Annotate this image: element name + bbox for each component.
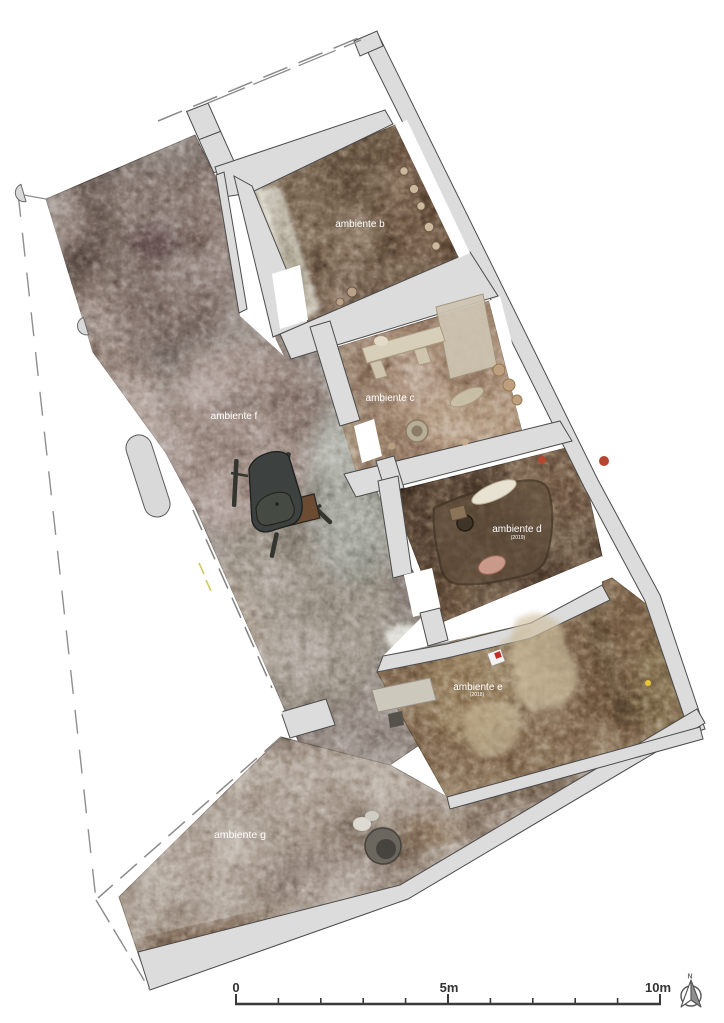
svg-text:0: 0 bbox=[232, 980, 239, 995]
svg-text:ambiente g: ambiente g bbox=[214, 829, 266, 841]
svg-text:ambiente c: ambiente c bbox=[366, 393, 415, 404]
svg-text:ambiente b: ambiente b bbox=[335, 219, 385, 230]
svg-text:N: N bbox=[687, 974, 692, 981]
svg-text:10m: 10m bbox=[645, 980, 671, 995]
svg-text:ambiente f: ambiente f bbox=[211, 411, 258, 422]
svg-text:5m: 5m bbox=[440, 980, 459, 995]
svg-text:(2018): (2018) bbox=[470, 692, 485, 698]
svg-text:ambiente d: ambiente d bbox=[492, 524, 541, 535]
svg-text:(2019): (2019) bbox=[511, 535, 526, 541]
